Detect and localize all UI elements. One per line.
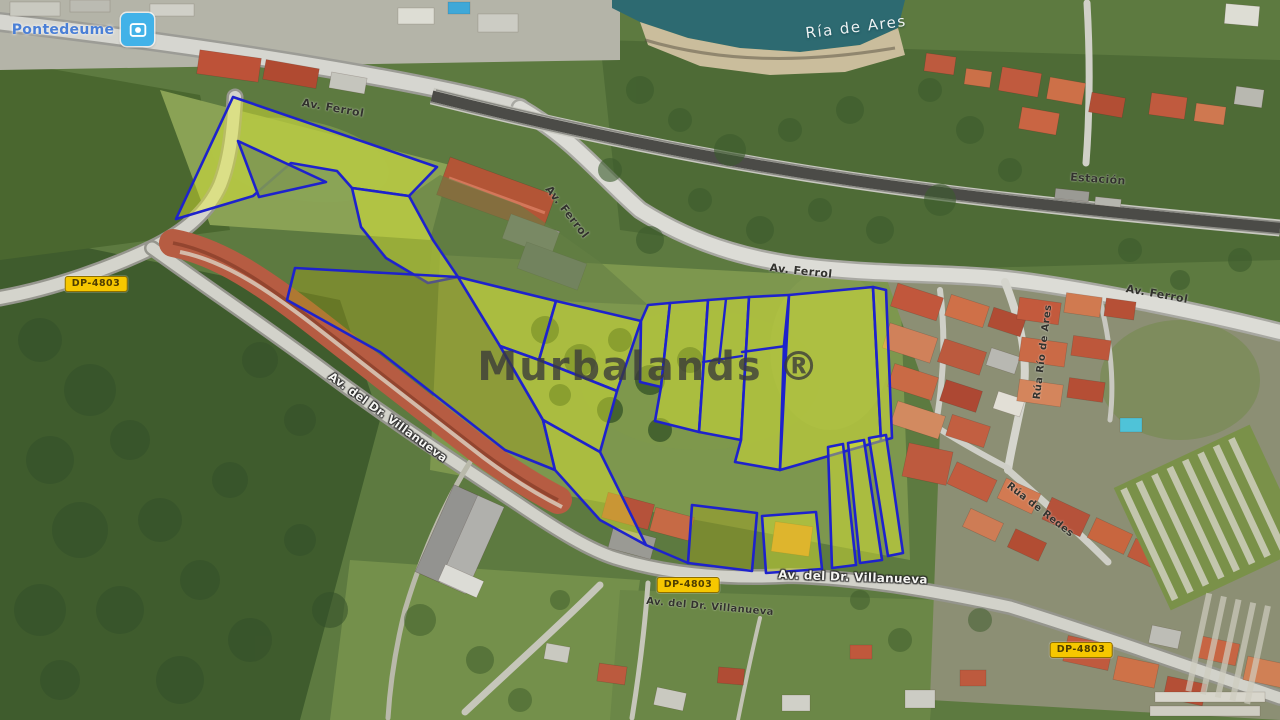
parcel-polygon[interactable] [688,505,757,571]
road-badge-dp4803: DP-4803 [1050,642,1113,658]
parcel-polygon[interactable] [780,287,881,470]
parcel-polygon[interactable] [762,512,822,573]
station-icon[interactable] [121,13,154,46]
road-badge-dp4803: DP-4803 [65,276,128,292]
satellite-imagery [0,0,1280,720]
camera-glyph [127,19,149,41]
road-badge-dp4803: DP-4803 [657,577,720,593]
satellite-map-viewport[interactable]: Pontedeume Ría de Ares Av. Ferrol Av. Fe… [0,0,1280,720]
